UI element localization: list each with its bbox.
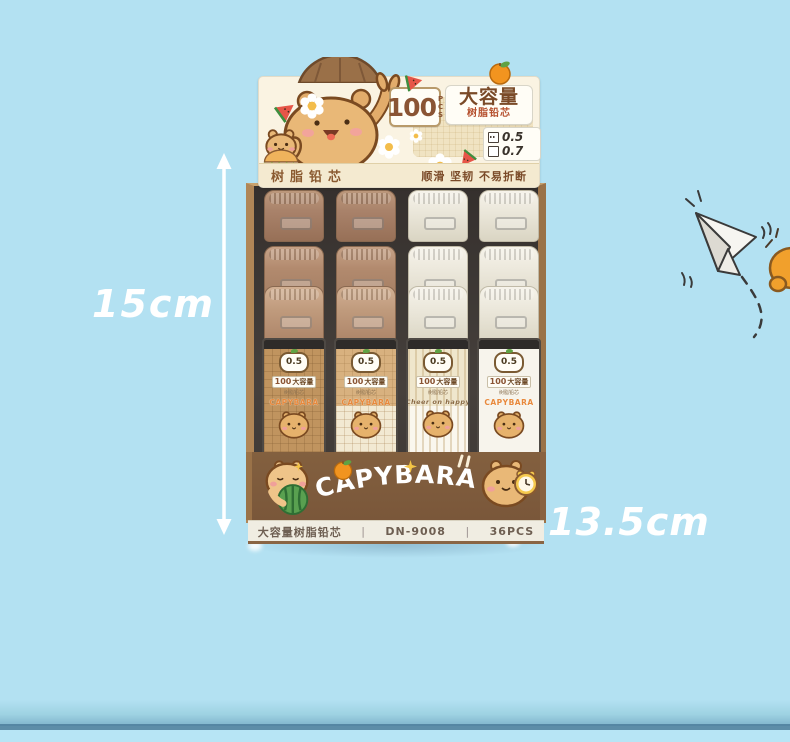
label-subtitle: 树脂铅芯 [428,389,448,396]
box-front-panel: CAPYBARA [246,452,546,520]
lead-size-badge: 0.5 [423,352,453,373]
title-large: 大容量 [446,86,532,108]
label-capacity-chip: 100大容量 [344,376,389,388]
lead-size-badge: 0.5 [494,352,524,373]
sparkle-icon [294,462,303,471]
product-name-text: 大容量树脂铅芯 [258,524,342,540]
label-brand: Cheer on happy [406,398,470,406]
lead-container-body: 0.5 100大容量 树脂铅芯 CAPYBARA [334,338,398,462]
label-count: 100 [347,377,364,386]
divider: | [361,525,366,538]
model-number-text: DN-9008 [385,525,446,538]
lead-container-cap [408,286,468,344]
label-capacity-chip: 100大容量 [416,376,461,388]
lead-container-body: 0.5 100大容量 树脂铅芯 CAPYBARA [262,338,326,462]
label-capacity-chip: 100大容量 [272,376,317,388]
exclamation-marks [456,454,472,468]
lead-container-cap [408,190,468,242]
lead-window [264,340,324,349]
leaf-icon [435,349,442,353]
header-banner: 树脂铅芯 顺滑 坚韧 不易折断 [259,163,539,187]
checkbox-checked-icon [488,132,499,143]
size-options-box: 0.5 0.7 [483,127,541,161]
label-count: 100 [419,377,436,386]
label-subtitle: 树脂铅芯 [284,389,304,396]
pcs-unit: PCS [438,95,443,119]
box-bottom-strip: 大容量树脂铅芯 | DN-9008 | 36PCS [248,520,544,542]
lead-container-cap [336,190,396,242]
lead-container-body: 0.5 100大容量 树脂铅芯 CAPYBARA [477,338,541,462]
label-capacity-chip: 100大容量 [487,376,532,388]
label-subtitle: 树脂铅芯 [356,389,376,396]
capybara-label-icon [420,407,456,441]
sparkle-icon [404,460,417,473]
size-option-row: 0.7 [488,144,536,158]
lead-container-cap [264,190,324,242]
title-sub: 树脂铅芯 [446,108,532,119]
banner-right-text: 顺滑 坚韧 不易折断 [421,168,527,184]
label-brand: CAPYBARA [484,398,533,407]
divider: | [465,525,470,538]
lead-window [479,340,539,349]
lead-size-badge: 0.5 [351,352,381,373]
table-edge [0,700,790,726]
product-title-box: 大容量 树脂铅芯 [445,85,533,125]
size-option-label: 0.7 [502,144,523,158]
floor [0,730,790,742]
watermelon-icon [402,73,425,94]
paper-airplane-doodle [678,185,790,350]
lead-window [336,340,396,349]
label-brand: CAPYBARA [341,398,390,407]
checkbox-icon [488,146,499,157]
lead-size-text: 0.5 [286,357,302,367]
capybara-label-icon [491,408,527,442]
lead-size-text: 0.5 [358,357,374,367]
width-dimension-label: 13.5cm [548,500,703,544]
daisy-icon [377,135,401,159]
lead-container-cap [479,286,539,344]
lead-container-cap [264,286,324,344]
header-card: 100 PCS 大容量 树脂铅芯 0.5 0.7 树脂铅芯 顺滑 [258,76,540,188]
daisy-icon [299,93,325,119]
label-count: 100 [490,377,507,386]
label-title: 大容量 [507,378,528,386]
box-bottom-edge [248,541,544,544]
lead-size-badge: 0.5 [279,352,309,373]
leaf-icon [506,349,513,353]
label-brand: CAPYBARA [269,398,318,407]
label-title: 大容量 [292,378,313,386]
lead-container-cap [479,190,539,242]
daisy-icon [409,129,423,143]
orange-icon [332,458,354,482]
size-option-row: 0.5 [488,130,536,144]
label-title: 大容量 [436,378,457,386]
leaf-icon [291,349,298,353]
lead-size-text: 0.5 [430,357,446,367]
product-scene: 15cm 13.5cm 0.5 100大容量 树脂铅芯 CAPYBARA [0,0,790,742]
lead-size-text: 0.5 [501,357,517,367]
height-dimension-arrow [214,152,234,536]
leaf-icon [363,349,370,353]
lead-window [408,340,468,349]
size-option-label: 0.5 [502,130,523,144]
lead-container-cap [336,286,396,344]
height-dimension-label: 15cm [92,282,210,326]
pcs-number: 100 [387,93,436,122]
capybara-clock-illustration [474,452,540,518]
capybara-label-icon [348,408,384,442]
label-title: 大容量 [364,378,385,386]
lead-container-body: 0.5 100大容量 树脂铅芯 Cheer on happy [406,338,470,462]
piece-count-text: 36PCS [490,525,535,538]
capybara-label-icon [276,408,312,442]
capybara-watermelon-illustration [258,454,316,518]
orange-icon [487,59,513,87]
label-count: 100 [275,377,292,386]
banner-left-text: 树脂铅芯 [271,166,347,185]
label-subtitle: 树脂铅芯 [499,389,519,396]
